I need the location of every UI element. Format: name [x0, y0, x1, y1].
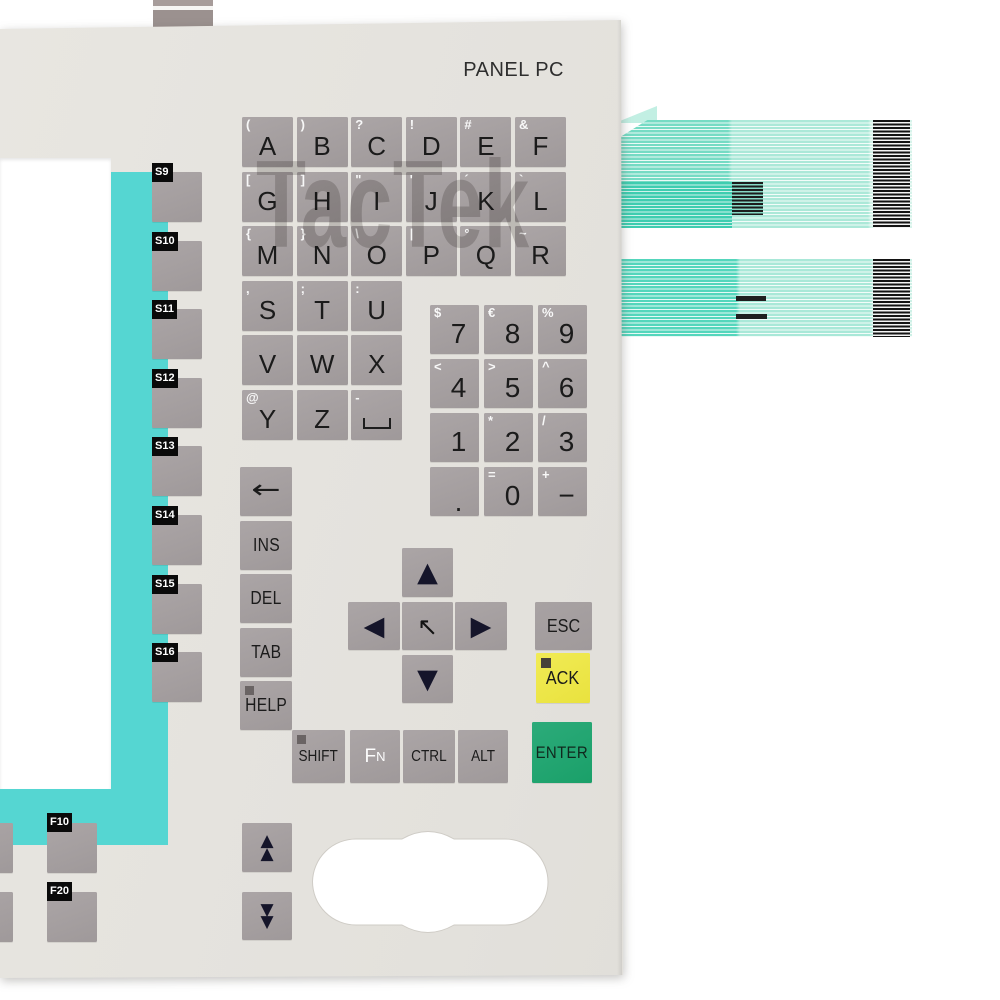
- key-del[interactable]: DEL: [240, 574, 292, 623]
- key-label: TAB: [251, 642, 281, 663]
- key-symbol: (: [246, 118, 250, 133]
- backspace-arrow-icon: ←: [251, 475, 280, 505]
- softkey-tag: S10: [152, 232, 178, 251]
- key-letter: C: [367, 122, 386, 162]
- membrane-keypad-photo: PANEL PC ▲ ◀ ↖ ▶ ▼ ESC ACK ENTE: [0, 0, 1000, 1000]
- fkey-tag: F20: [47, 882, 72, 901]
- key-C[interactable]: ?C: [351, 117, 402, 167]
- key-S[interactable]: ,S: [242, 281, 293, 331]
- key-label: CTRL: [411, 748, 447, 766]
- key-E[interactable]: #E: [460, 117, 511, 167]
- space-icon: [363, 418, 391, 429]
- numpad-key-2[interactable]: *2: [484, 413, 533, 462]
- home-arrow-icon: ↖: [417, 612, 438, 641]
- key-symbol: -: [355, 391, 359, 406]
- numpad-key-3[interactable]: /3: [538, 413, 587, 462]
- key-symbol: ): [301, 118, 305, 133]
- key-A[interactable]: (A: [242, 117, 293, 167]
- key-letter: T: [314, 286, 330, 326]
- key-letter: P: [423, 231, 440, 271]
- key-letter: O: [367, 231, 387, 271]
- up-triangle-icon: ▲: [417, 559, 438, 586]
- key-digit: 5: [497, 363, 521, 404]
- numpad-key-.[interactable]: .: [430, 467, 479, 516]
- key-M[interactable]: {M: [242, 226, 293, 276]
- key-letter: E: [477, 122, 494, 162]
- key-symbol: *: [488, 414, 493, 429]
- key-label: SHIFT: [299, 748, 338, 766]
- led-indicator: [297, 735, 306, 744]
- page-up-key[interactable]: ▲▲: [242, 823, 292, 872]
- key-label: ALT: [471, 748, 495, 766]
- double-up-triangle-icon: ▲▲: [260, 835, 273, 859]
- page-down-key[interactable]: ▼▼: [242, 892, 292, 940]
- key-letter: D: [422, 122, 441, 162]
- key-letter: B: [313, 122, 330, 162]
- key-H[interactable]: ]H: [297, 172, 348, 222]
- numpad-key-6[interactable]: ^6: [538, 359, 587, 408]
- numpad-key-9[interactable]: %9: [538, 305, 587, 354]
- arrow-left-key[interactable]: ◀: [348, 602, 400, 650]
- fn-label-main: F: [365, 746, 377, 768]
- key-letter: G: [257, 177, 277, 217]
- key-D[interactable]: !D: [406, 117, 457, 167]
- key-T[interactable]: ;T: [297, 281, 348, 331]
- key-letter: X: [368, 340, 385, 380]
- key-label: DEL: [250, 588, 281, 609]
- down-triangle-icon: ▼: [417, 666, 438, 693]
- key-digit: 4: [443, 363, 467, 404]
- key-symbol: $: [434, 306, 441, 321]
- key-Y[interactable]: @Y: [242, 390, 293, 440]
- arrow-up-key[interactable]: ▲: [402, 548, 453, 597]
- key-U[interactable]: :U: [351, 281, 402, 331]
- key-O[interactable]: \O: [351, 226, 402, 276]
- key-tab[interactable]: TAB: [240, 628, 292, 677]
- key-letter: Q: [476, 231, 496, 271]
- key-symbol: #: [464, 118, 471, 133]
- key-symbol: +: [542, 468, 550, 483]
- key-letter: F: [533, 122, 549, 162]
- key-F[interactable]: &F: [515, 117, 566, 167]
- esc-label: ESC: [547, 616, 580, 637]
- softkey-tag: S16: [152, 643, 178, 662]
- key-V[interactable]: V: [242, 335, 293, 385]
- key-letter: R: [531, 231, 550, 271]
- numpad-key-0[interactable]: =0: [484, 467, 533, 516]
- key-letter: H: [313, 177, 332, 217]
- softkey-tag: S14: [152, 506, 178, 525]
- numpad-key-−[interactable]: +−: [538, 467, 587, 516]
- membrane-panel: PANEL PC ▲ ◀ ↖ ▶ ▼ ESC ACK ENTE: [0, 0, 1000, 1000]
- key-symbol: [: [246, 173, 250, 188]
- key-J[interactable]: 'J: [406, 172, 457, 222]
- key-letter: N: [313, 231, 332, 271]
- connector-cutout: [295, 818, 565, 948]
- softkey-tag: S13: [152, 437, 178, 456]
- key-partial-2[interactable]: [0, 892, 13, 942]
- key-symbol: {: [246, 227, 251, 242]
- key-label: INS: [253, 535, 280, 556]
- ack-label: ACK: [546, 668, 579, 689]
- key-ins[interactable]: INS: [240, 521, 292, 570]
- key-symbol: >: [488, 360, 496, 375]
- numpad-key-1[interactable]: 1: [430, 413, 479, 462]
- key-symbol: ´: [464, 173, 468, 188]
- key-K[interactable]: ´K: [460, 172, 511, 222]
- key-letter: V: [259, 340, 276, 380]
- key-letter: M: [257, 231, 279, 271]
- key-digit: 2: [497, 417, 521, 458]
- ack-key[interactable]: ACK: [536, 653, 590, 703]
- key-symbol: ": [355, 173, 361, 188]
- key-symbol: ]: [301, 173, 305, 188]
- key-letter: K: [477, 177, 494, 217]
- double-down-triangle-icon: ▼▼: [260, 904, 273, 928]
- numpad-key-7[interactable]: $7: [430, 305, 479, 354]
- ack-led-indicator: [541, 658, 551, 668]
- key-letter: Y: [259, 395, 276, 435]
- key-symbol: /: [542, 414, 546, 429]
- key-digit: 8: [497, 309, 521, 350]
- fkey-tag: F10: [47, 813, 72, 832]
- enter-key[interactable]: ENTER: [532, 722, 592, 783]
- softkey-tag: S12: [152, 369, 178, 388]
- key-N[interactable]: }N: [297, 226, 348, 276]
- key-fn[interactable]: FN: [350, 730, 400, 783]
- panel-title: PANEL PC: [452, 59, 564, 82]
- key-L[interactable]: `L: [515, 172, 566, 222]
- key-label: HELP: [245, 695, 287, 716]
- key-alt[interactable]: ALT: [458, 730, 508, 783]
- key-symbol: €: [488, 306, 495, 321]
- left-triangle-icon: ◀: [364, 613, 385, 640]
- key-symbol: `: [519, 173, 523, 188]
- key-symbol: ': [410, 173, 413, 188]
- key-digit: 1: [443, 417, 467, 458]
- key-Z[interactable]: Z: [297, 390, 348, 440]
- key-symbol: &: [519, 118, 528, 133]
- key-symbol: °: [464, 227, 469, 242]
- key-symbol: ?: [355, 118, 363, 133]
- key-digit: 6: [551, 363, 575, 404]
- key-symbol: }: [301, 227, 306, 242]
- key-symbol: :: [355, 282, 359, 297]
- key-shift[interactable]: SHIFT: [292, 730, 345, 783]
- key-letter: S: [259, 286, 276, 326]
- softkey-tag: S11: [152, 300, 177, 319]
- key-digit: 7: [443, 309, 467, 350]
- display-cutout: [0, 158, 111, 789]
- key-digit: 9: [551, 309, 575, 350]
- key-symbol: ~: [519, 227, 527, 242]
- key-symbol: |: [410, 227, 414, 242]
- fn-label-sub: N: [376, 749, 385, 764]
- key-letter: U: [367, 286, 386, 326]
- panel-shadow-wrap: PANEL PC ▲ ◀ ↖ ▶ ▼ ESC ACK ENTE: [0, 0, 1000, 1000]
- key-digit: .: [447, 466, 463, 518]
- key-symbol: ;: [301, 282, 305, 297]
- key-symbol: =: [488, 468, 496, 483]
- key-R[interactable]: ~R: [515, 226, 566, 276]
- key-symbol: ,: [246, 282, 250, 297]
- key-space[interactable]: -: [351, 390, 402, 440]
- key-letter: L: [533, 177, 547, 217]
- key-letter: I: [373, 177, 380, 217]
- key-P[interactable]: |P: [406, 226, 457, 276]
- key-partial-1[interactable]: [0, 823, 13, 873]
- key-symbol: %: [542, 306, 554, 321]
- numpad-key-4[interactable]: <4: [430, 359, 479, 408]
- panel-edge-shade: [617, 20, 622, 975]
- arrow-down-key[interactable]: ▼: [402, 655, 453, 703]
- arrow-right-key[interactable]: ▶: [455, 602, 507, 650]
- key-help[interactable]: HELP: [240, 681, 292, 730]
- numpad-key-5[interactable]: >5: [484, 359, 533, 408]
- key-symbol: @: [246, 391, 259, 406]
- arrow-home-key[interactable]: ↖: [402, 602, 453, 650]
- enter-label: ENTER: [536, 743, 588, 763]
- key-W[interactable]: W: [297, 335, 348, 385]
- key-symbol: \: [355, 227, 359, 242]
- key-I[interactable]: "I: [351, 172, 402, 222]
- esc-key[interactable]: ESC: [535, 602, 592, 650]
- key-symbol: !: [410, 118, 414, 133]
- key-symbol: <: [434, 360, 442, 375]
- key-symbol: ^: [542, 360, 550, 375]
- led-indicator: [245, 686, 254, 695]
- key-ctrl[interactable]: CTRL: [403, 730, 455, 783]
- key-letter: A: [259, 122, 276, 162]
- key-X[interactable]: X: [351, 335, 402, 385]
- key-letter: J: [425, 177, 438, 217]
- softkey-tag: S9: [152, 163, 173, 182]
- key-backspace[interactable]: ←: [240, 467, 292, 516]
- key-digit: 0: [497, 471, 521, 512]
- key-letter: Z: [314, 395, 330, 435]
- key-digit: 3: [551, 417, 575, 458]
- key-G[interactable]: [G: [242, 172, 293, 222]
- numpad-key-8[interactable]: €8: [484, 305, 533, 354]
- key-letter: W: [310, 340, 335, 380]
- right-triangle-icon: ▶: [471, 613, 492, 640]
- key-Q[interactable]: °Q: [460, 226, 511, 276]
- key-B[interactable]: )B: [297, 117, 348, 167]
- key-digit: −: [550, 471, 574, 512]
- softkey-tag: S15: [152, 575, 178, 594]
